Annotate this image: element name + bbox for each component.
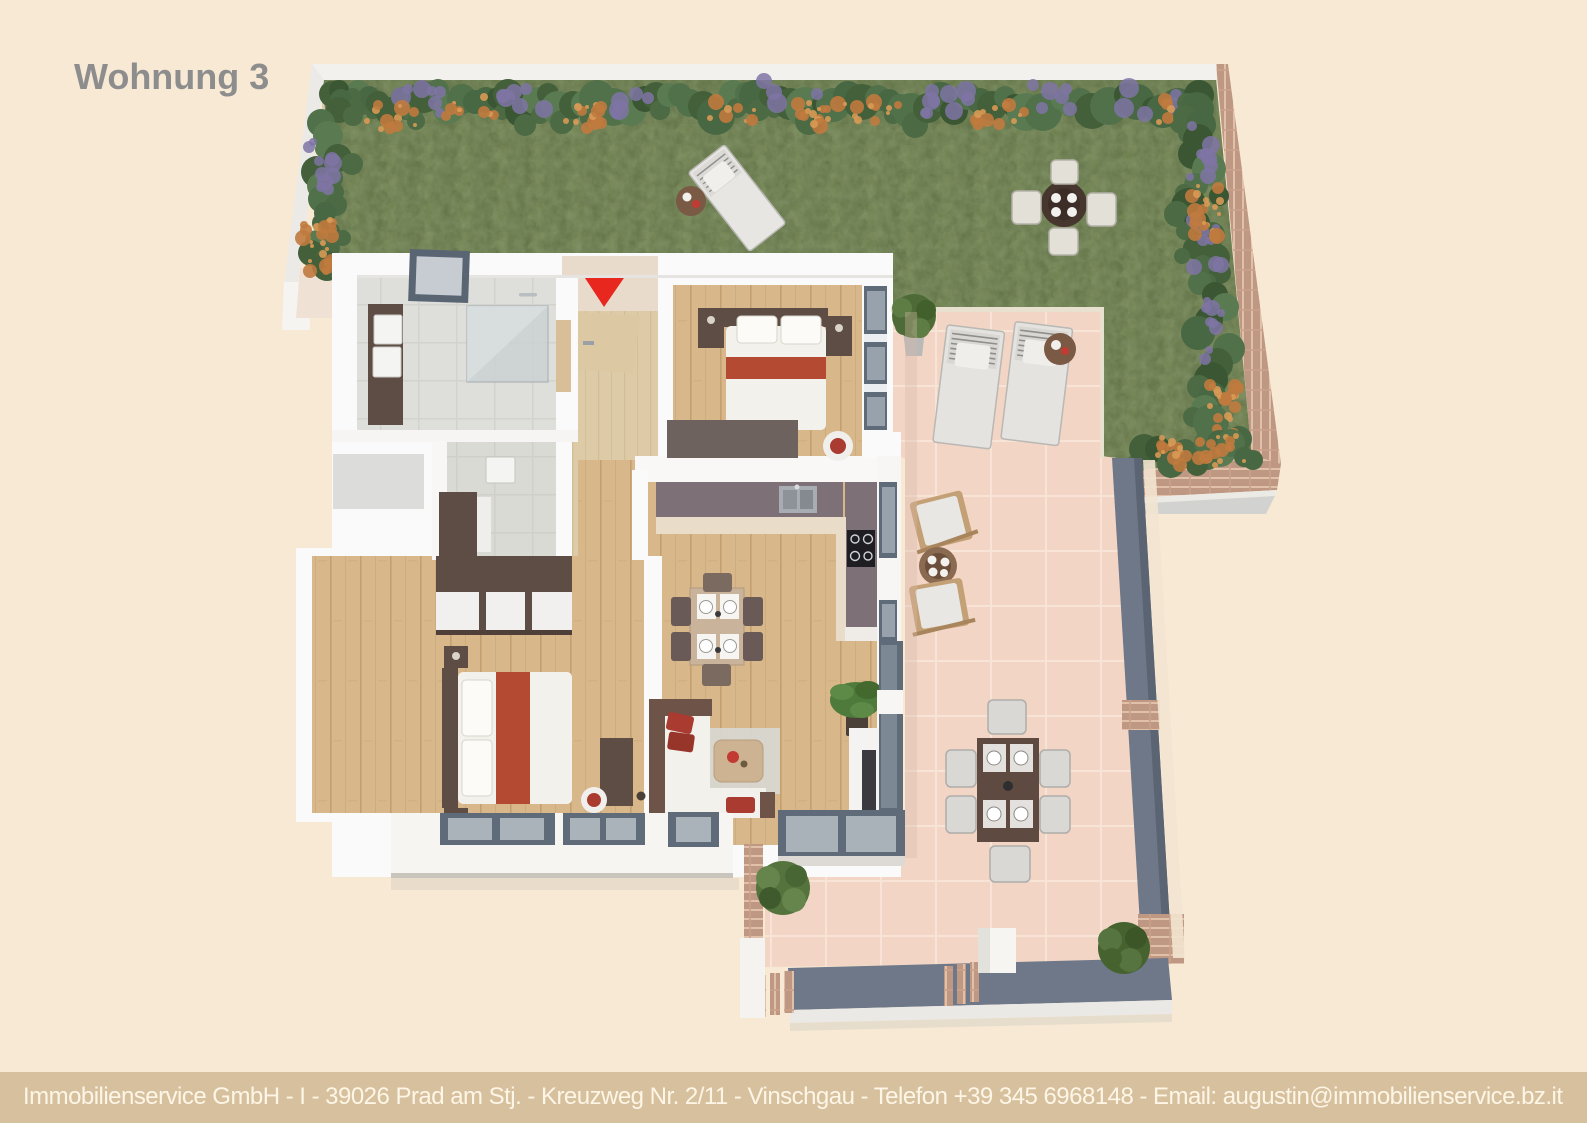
svg-text:Immobilienservice GmbH - I - 3: Immobilienservice GmbH - I - 39026 Prad … xyxy=(23,1083,1563,1110)
svg-text:Wohnung 3: Wohnung 3 xyxy=(74,56,269,97)
